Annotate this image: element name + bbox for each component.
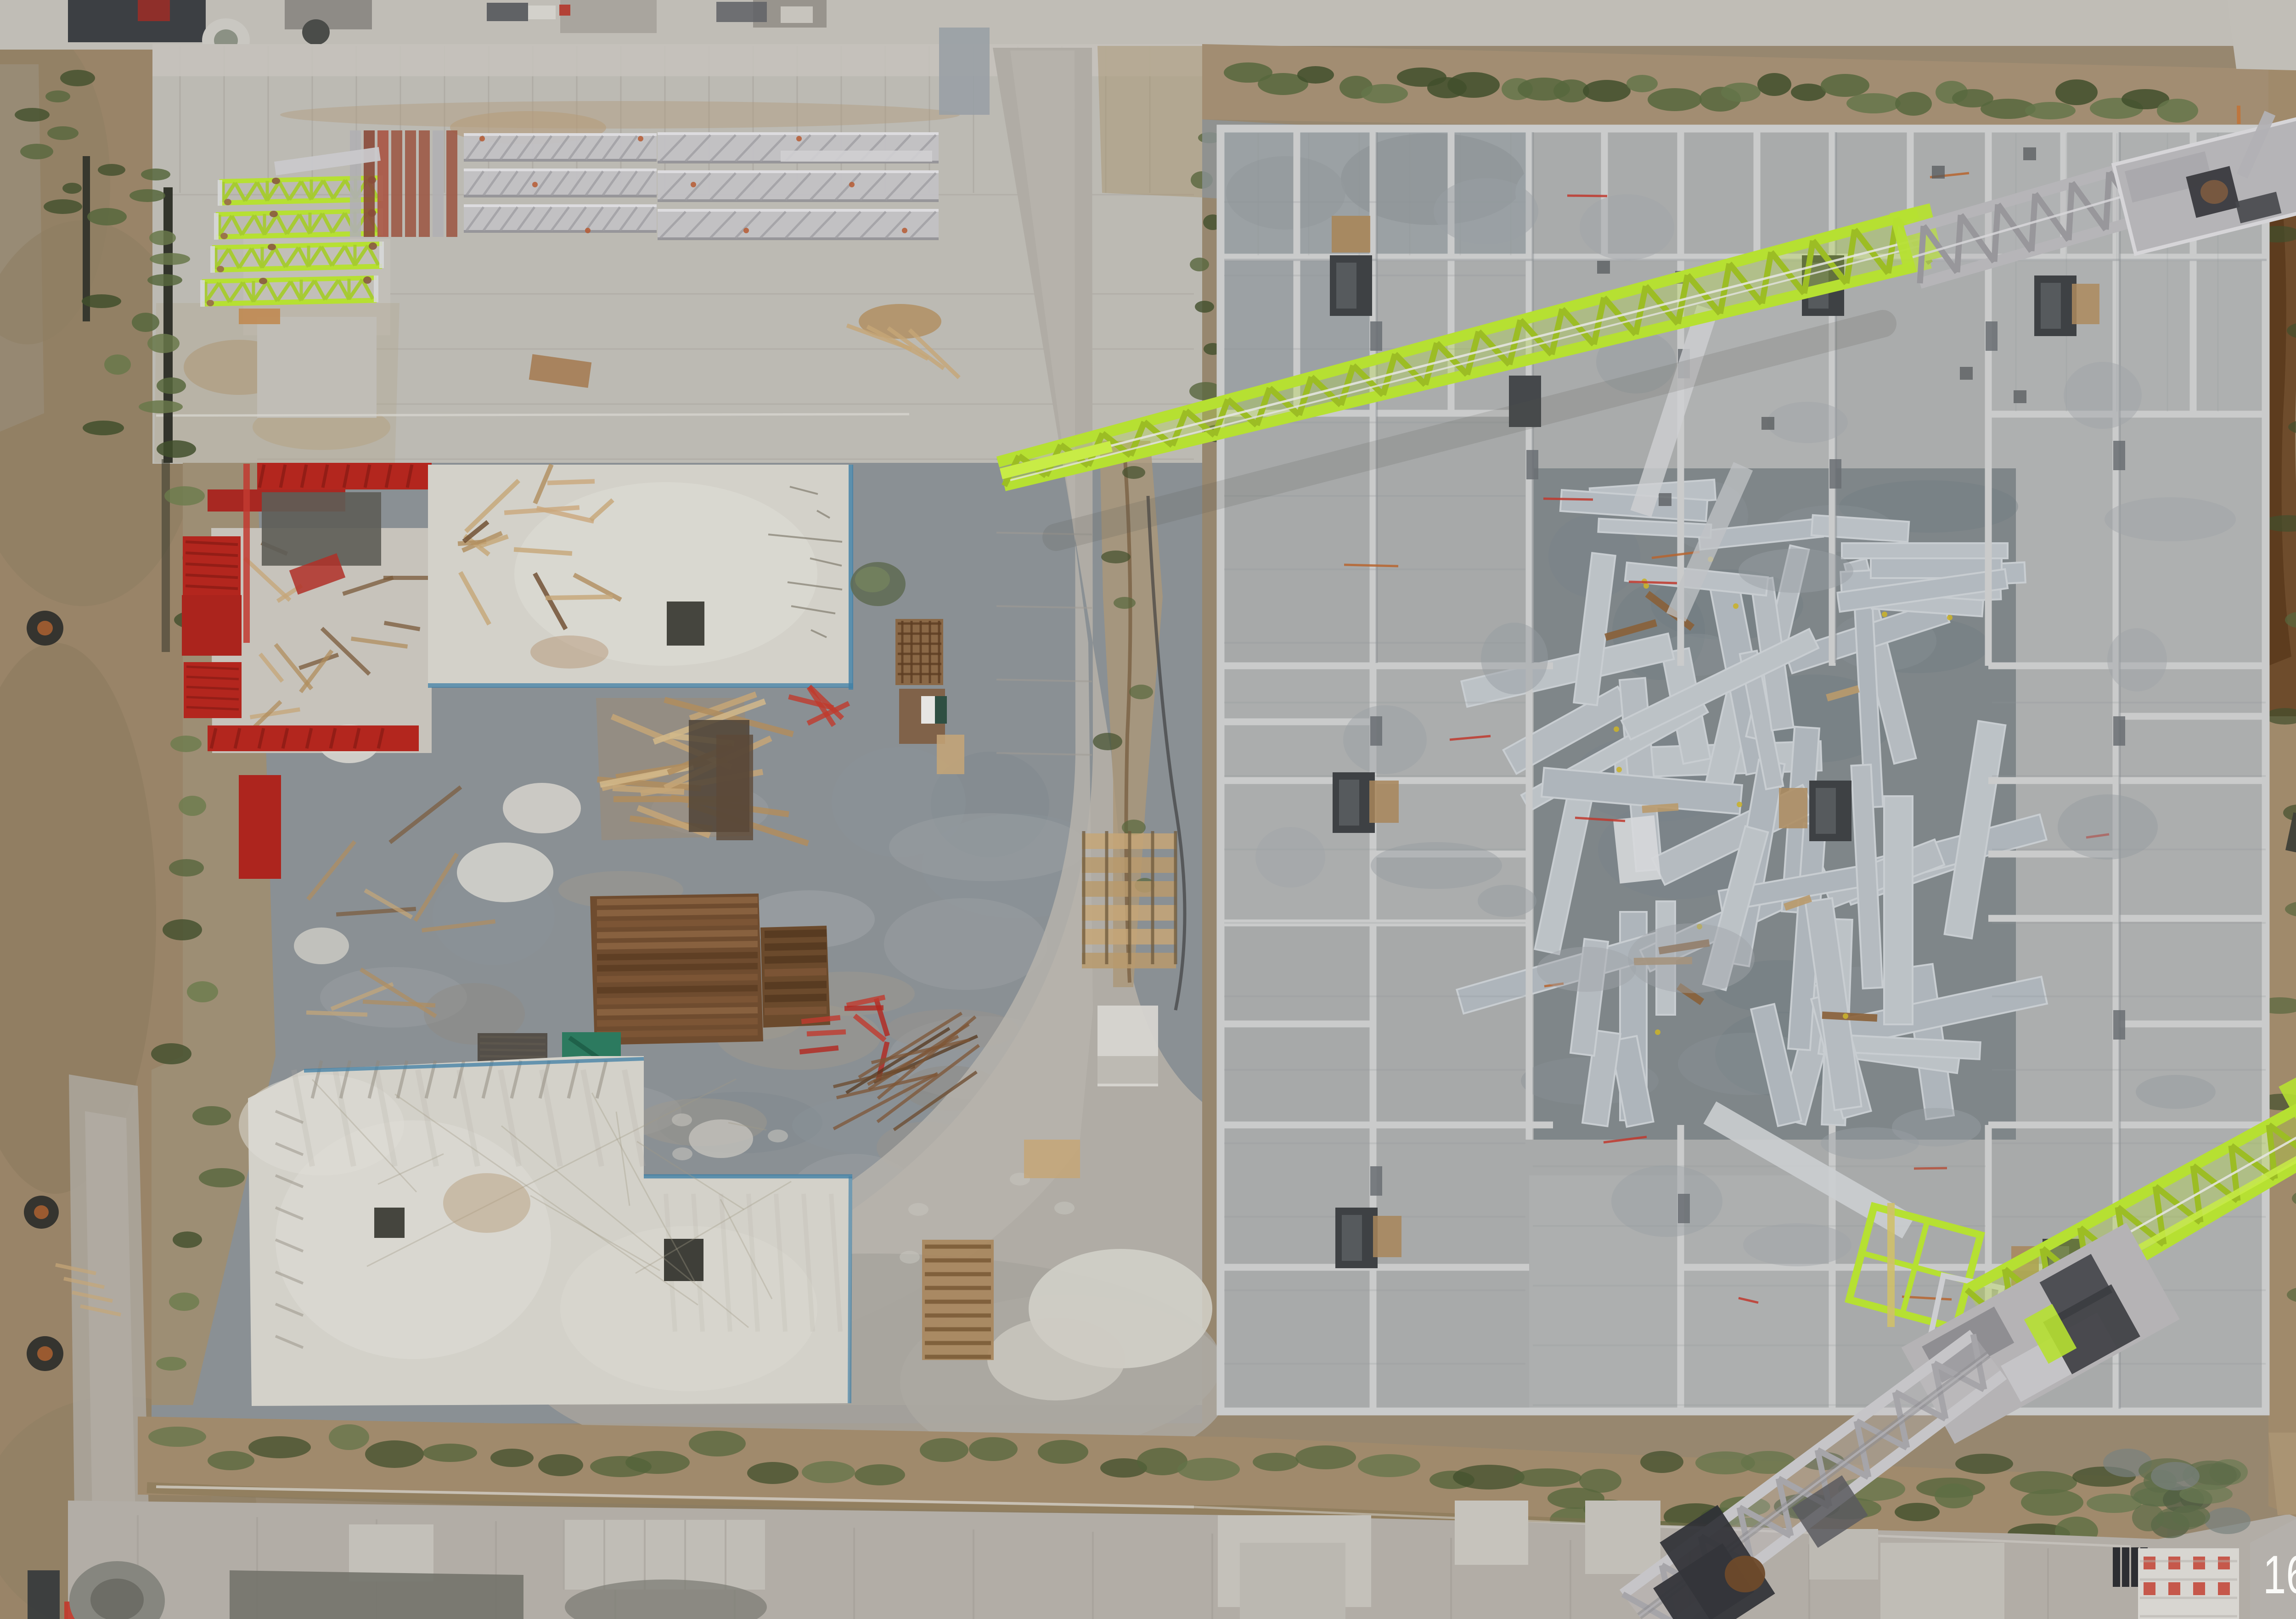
svg-text:16.08.25: 16.08.25 [2263, 1545, 2296, 1605]
